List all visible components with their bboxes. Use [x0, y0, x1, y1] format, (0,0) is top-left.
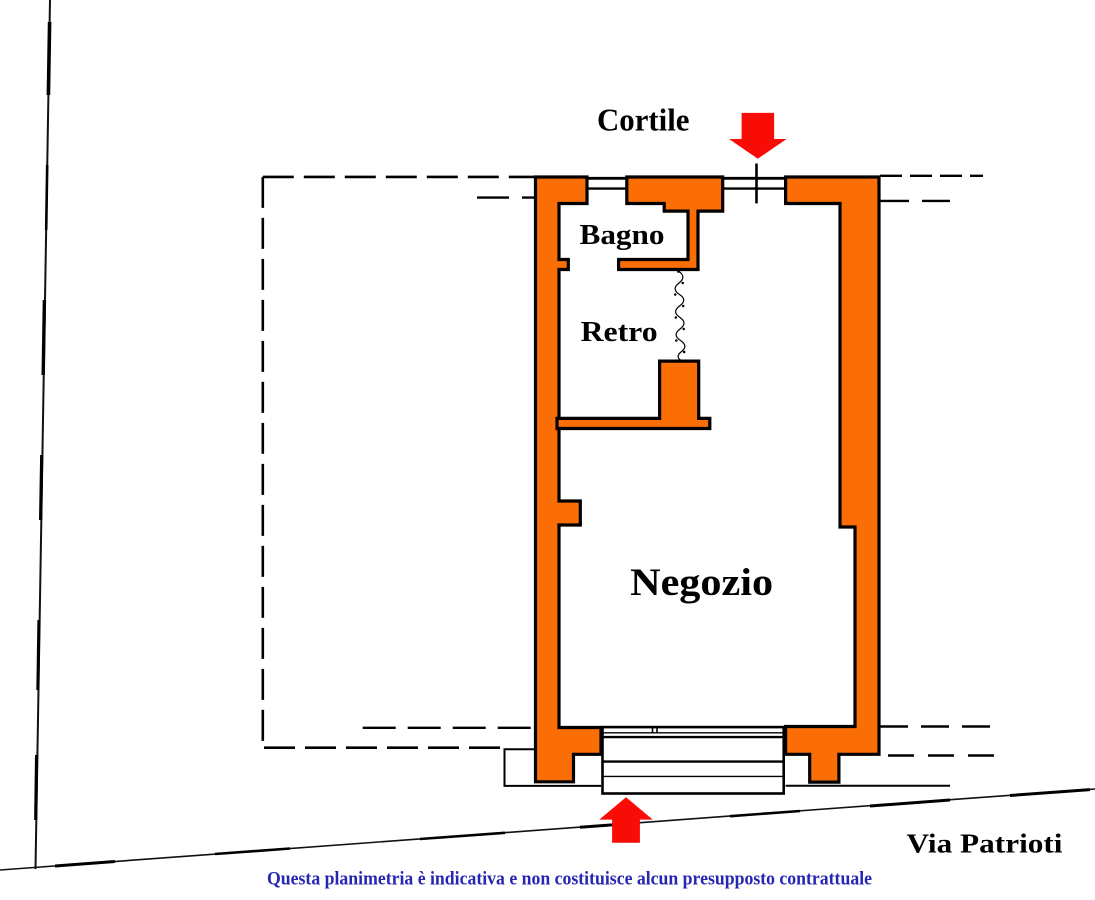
- svg-text:Bagno: Bagno: [580, 220, 665, 251]
- svg-text:Negozio: Negozio: [630, 561, 773, 604]
- svg-text:Retro: Retro: [581, 317, 658, 348]
- svg-text:Via Patrioti: Via Patrioti: [907, 828, 1064, 858]
- svg-text:Cortile: Cortile: [597, 103, 690, 138]
- svg-text:Questa planimetria è indicativ: Questa planimetria è indicativa e non co…: [267, 870, 872, 890]
